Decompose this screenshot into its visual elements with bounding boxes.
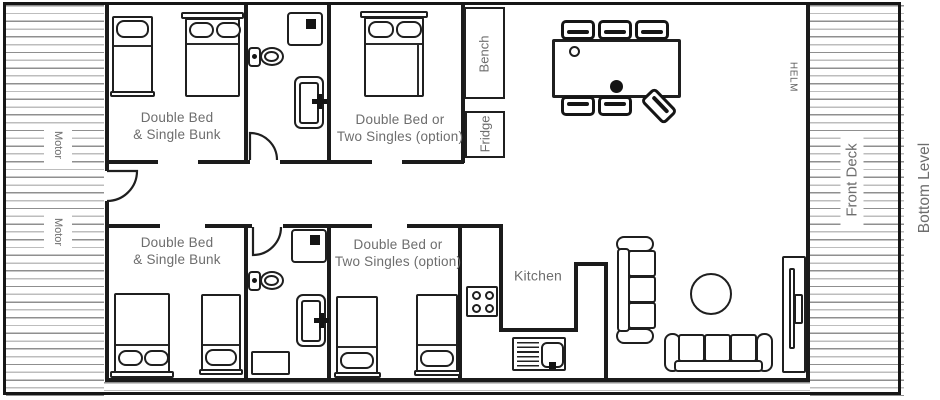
bed-footboard <box>199 369 243 375</box>
pillow <box>116 20 149 38</box>
sink-faucet <box>549 362 556 369</box>
cabin-label-line: & Single Bunk <box>133 252 220 269</box>
bench-label: Bench <box>477 36 492 73</box>
stove <box>466 286 498 317</box>
cabin-label-line: Double Bed or <box>337 112 463 129</box>
shower <box>291 229 327 263</box>
cabin-label-line: & Single Bunk <box>133 127 220 144</box>
toilet-seat <box>264 51 279 62</box>
cabin-label-bottom-middle: Double Bed or Two Singles (option) <box>335 237 461 271</box>
front-deck-label: Front Deck <box>841 131 864 228</box>
sofa-cushion <box>628 250 656 277</box>
fridge-label: Fridge <box>478 116 493 153</box>
sofa-cushion <box>730 334 757 362</box>
pillow <box>144 350 169 366</box>
pillow <box>216 22 241 38</box>
dining-chair <box>598 96 632 116</box>
entry-door-arc <box>107 171 137 201</box>
sink-drainer <box>517 342 539 367</box>
dining-chair <box>561 96 595 116</box>
bed-line <box>187 43 238 45</box>
bathroom-cabinet <box>251 351 290 375</box>
cabin-label-top-left: Double Bed & Single Bunk <box>133 110 220 144</box>
pillow <box>340 352 374 369</box>
sofa-cushion <box>704 334 731 362</box>
bed-footboard <box>110 91 155 97</box>
table-decor-dot <box>610 80 623 93</box>
bed-line <box>338 346 376 348</box>
bed-footboard <box>414 370 461 376</box>
shower-head <box>306 19 316 29</box>
cabin-label-line: Two Singles (option) <box>335 254 461 271</box>
houseboat-floor-plan: Bench Fridge <box>0 0 940 400</box>
pillow <box>368 21 394 38</box>
stove-burner <box>485 291 494 300</box>
bathroom-bottom-door-arc <box>253 227 281 255</box>
bed-line <box>116 344 168 346</box>
faucet <box>317 94 322 109</box>
sofa-vertical <box>616 236 658 344</box>
dining-chair <box>598 20 632 40</box>
stove-burner <box>485 304 494 313</box>
kitchen-label: Kitchen <box>514 267 562 285</box>
sofa-horizontal <box>664 331 773 374</box>
table-decor-ring <box>569 46 580 57</box>
pillow <box>396 21 422 38</box>
cabin-label-bottom-left: Double Bed & Single Bunk <box>133 235 220 269</box>
shower-head <box>310 235 320 245</box>
sofa-cushion <box>678 334 705 362</box>
tv-mount <box>794 294 803 324</box>
bed-line <box>418 344 456 346</box>
shower <box>287 12 323 46</box>
level-title: Bottom Level <box>916 143 934 233</box>
bed-line <box>114 45 151 47</box>
bed-line <box>417 43 419 95</box>
stove-burner <box>472 291 481 300</box>
pillow <box>189 22 214 38</box>
cabin-label-line: Double Bed <box>133 110 220 127</box>
stove-burner <box>472 304 481 313</box>
toilet-button <box>252 54 257 59</box>
bed-footboard <box>334 372 381 378</box>
coffee-table <box>690 273 732 315</box>
motor-label-upper: Motor <box>44 127 72 163</box>
cabin-label-line: Double Bed <box>133 235 220 252</box>
helm-label: HELM <box>788 62 799 92</box>
sofa-cushion <box>628 276 656 303</box>
dining-chair <box>561 20 595 40</box>
sofa-cushion <box>628 302 656 329</box>
bathroom-top-door-arc <box>250 133 277 160</box>
cabin-label-line: Double Bed or <box>335 237 461 254</box>
pillow <box>205 349 237 366</box>
pillow <box>420 350 454 367</box>
cabin-label-line: Two Singles (option) <box>337 129 463 146</box>
motor-label-lower: Motor <box>44 214 72 250</box>
bed-line <box>203 344 239 346</box>
cabin-label-top-middle: Double Bed or Two Singles (option) <box>337 112 463 146</box>
pillow <box>118 350 143 366</box>
dining-chair <box>635 20 669 40</box>
toilet-seat <box>264 275 279 286</box>
bed-line <box>366 43 422 45</box>
bed-headboard <box>110 371 174 378</box>
toilet-button <box>252 278 257 283</box>
faucet <box>319 313 324 328</box>
